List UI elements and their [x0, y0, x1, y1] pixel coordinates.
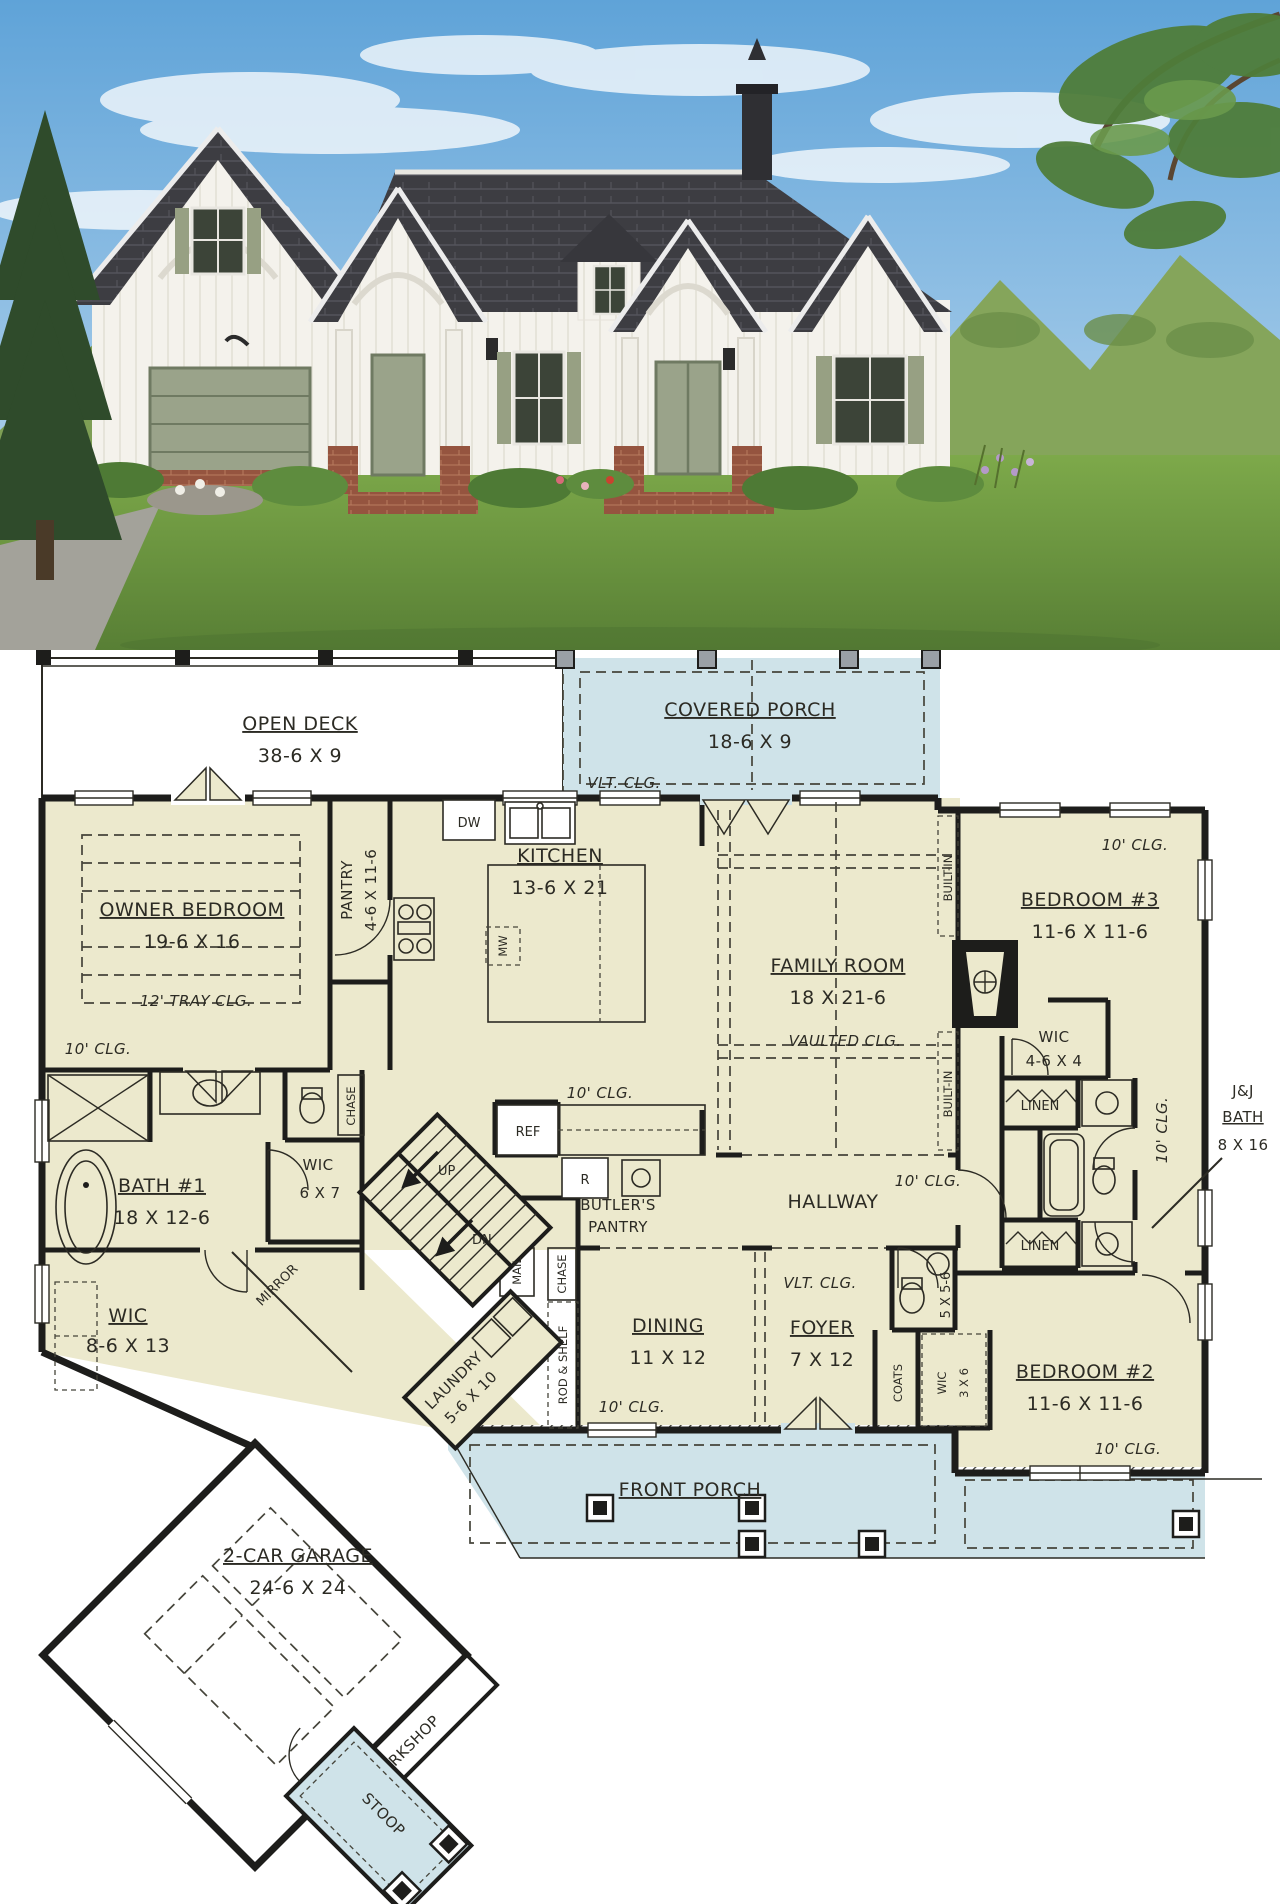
kitchen-label: KITCHEN	[517, 845, 603, 867]
range-label: R	[580, 1173, 589, 1188]
jj-bath-l1: J&J	[1231, 1082, 1254, 1100]
kitchen-clg: 10' CLG.	[567, 1084, 633, 1102]
hallway-label: HALLWAY	[787, 1191, 878, 1213]
facade-windows	[497, 352, 581, 444]
covered-porch-dims: 18-6 X 9	[708, 731, 792, 753]
butlers-l1: BUTLER'S	[580, 1196, 656, 1214]
coats-label: COATS	[891, 1364, 905, 1402]
owner-bedroom-tray: 12' TRAY CLG.	[140, 992, 252, 1010]
kitchen-sink	[505, 802, 575, 844]
powder-dims: 5 X 5-6	[939, 1272, 954, 1319]
dining-dims: 11 X 12	[630, 1347, 707, 1369]
refrigerator: REF	[497, 1105, 559, 1155]
butlers-l2: PANTRY	[588, 1218, 648, 1236]
linen1-label: LINEN	[1021, 1099, 1060, 1114]
suite-clg: 10' CLG.	[1153, 1097, 1171, 1163]
owner-wic-dims: 8-6 X 13	[86, 1335, 170, 1357]
bedroom3-label: BEDROOM #3	[1021, 889, 1159, 911]
dining-clg: 10' CLG.	[599, 1398, 665, 1416]
rod-shelf-label: ROD & SHELF	[556, 1326, 570, 1404]
bedroom2-clg: 10' CLG.	[1095, 1440, 1161, 1458]
pantry-label: PANTRY	[338, 860, 356, 920]
svg-text:REF: REF	[516, 1125, 541, 1140]
wic-bed2-dims: 3 X 6	[957, 1368, 971, 1398]
covered-porch-clg: VLT. CLG.	[587, 774, 660, 792]
stairs-dn: DN	[472, 1233, 492, 1248]
foyer-clg: VLT. CLG.	[783, 1274, 856, 1292]
owner-bedroom-dims: 19-6 X 16	[144, 931, 241, 953]
bedroom3-dims: 11-6 X 11-6	[1032, 921, 1149, 943]
wic-bath1-label: WIC	[303, 1156, 334, 1174]
stairs-up: UP	[438, 1164, 456, 1179]
bath1-dims: 18 X 12-6	[114, 1207, 211, 1229]
bedroom3-clg: 10' CLG.	[1102, 836, 1168, 854]
chase1-label: CHASE	[344, 1086, 358, 1125]
jj-bath-l2: BATH	[1222, 1108, 1263, 1126]
garage-label: 2-CAR GARAGE	[223, 1545, 373, 1567]
open-deck: OPEN DECK 38-6 X 9	[36, 650, 563, 798]
family-room-clg: VAULTED CLG.	[789, 1032, 902, 1050]
pantry-dims: 4-6 X 11-6	[362, 849, 380, 931]
fireplace	[952, 940, 1018, 1028]
wic-bath1-dims: 6 X 7	[300, 1184, 341, 1202]
foyer-dims: 7 X 12	[790, 1349, 854, 1371]
floor-plan: OPEN DECK 38-6 X 9 COVERED PORCH 18-6 X …	[0, 650, 1280, 1904]
hallway-clg: 10' CLG.	[895, 1172, 961, 1190]
wic-bed2-label: WIC	[935, 1372, 949, 1395]
dw-label: DW	[458, 816, 481, 831]
mw-label: MW	[496, 935, 510, 956]
wic-bed3-label: WIC	[1039, 1028, 1070, 1046]
svg-text:BUILT-IN: BUILT-IN	[941, 855, 955, 902]
front-porch-label: FRONT PORCH	[619, 1479, 762, 1501]
mail-label: MAIL	[510, 1257, 524, 1285]
owner-wic-label: WIC	[108, 1305, 147, 1327]
bedroom2-dims: 11-6 X 11-6	[1027, 1393, 1144, 1415]
svg-text:BUILT-IN: BUILT-IN	[941, 1071, 955, 1118]
front-door-left	[372, 355, 424, 475]
foyer-label: FOYER	[790, 1317, 854, 1339]
dining-label: DINING	[632, 1315, 704, 1337]
owner-bedroom-clg: 10' CLG.	[65, 1040, 131, 1058]
wic-bed3-dims: 4-6 X 4	[1026, 1052, 1083, 1070]
open-deck-label: OPEN DECK	[242, 713, 358, 735]
bath1-label: BATH #1	[118, 1175, 206, 1197]
house-rendering-photo	[0, 0, 1280, 650]
open-deck-dims: 38-6 X 9	[258, 745, 342, 767]
garage-dims: 24-6 X 24	[250, 1577, 347, 1599]
owner-bedroom-label: OWNER BEDROOM	[100, 899, 285, 921]
linen2-label: LINEN	[1021, 1239, 1060, 1254]
family-room-label: FAMILY ROOM	[771, 955, 906, 977]
jj-bath-dims: 8 X 16	[1218, 1136, 1269, 1154]
family-room-dims: 18 X 21-6	[790, 987, 887, 1009]
covered-porch: COVERED PORCH 18-6 X 9 VLT. CLG.	[556, 650, 940, 798]
bedroom2-label: BEDROOM #2	[1016, 1361, 1154, 1383]
covered-porch-label: COVERED PORCH	[664, 699, 836, 721]
kitchen-dims: 13-6 X 21	[512, 877, 609, 899]
chase2-label: CHASE	[555, 1254, 569, 1293]
